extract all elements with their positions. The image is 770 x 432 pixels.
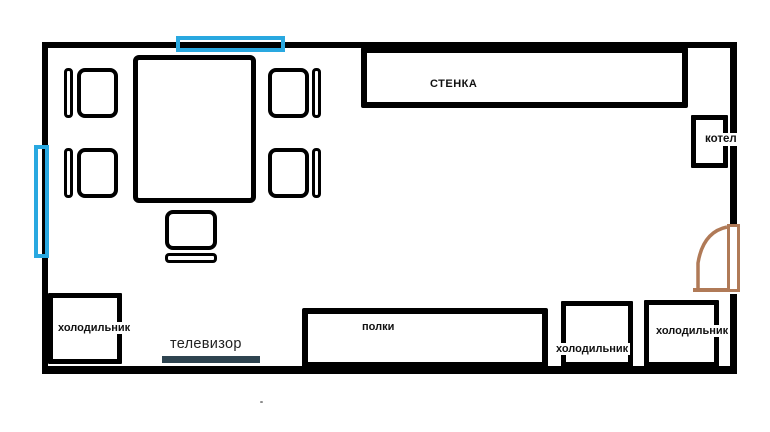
wall-unit-label: СТЕНКА: [428, 78, 479, 90]
chair-seat: [268, 148, 309, 198]
chair-back: [165, 253, 217, 263]
shelves-label: полки: [360, 321, 396, 333]
chair-back: [64, 148, 73, 198]
floor-plan: СТЕНКА котел холодильник телевизор полки…: [0, 0, 770, 432]
wall-unit-box: [361, 47, 688, 108]
fridge-left-label: холодильник: [56, 322, 132, 334]
chair-seat: [77, 148, 118, 198]
wall-right-lower: [730, 294, 737, 374]
tv-bar: [162, 356, 260, 363]
chair-seat: [165, 210, 217, 250]
chair-back: [312, 148, 321, 198]
boiler-label: котел: [703, 133, 739, 146]
fridge-middle-box: [561, 301, 633, 367]
window-top-icon: [176, 36, 285, 52]
stray-dot: [260, 401, 263, 403]
fridge-right-label: холодильник: [654, 325, 730, 337]
dining-table: [133, 55, 256, 203]
chair-seat: [268, 68, 309, 118]
window-left-icon: [34, 145, 49, 258]
chair-back: [312, 68, 321, 118]
door-icon: [688, 218, 746, 300]
tv-label: телевизор: [168, 337, 244, 353]
chair-back: [64, 68, 73, 118]
chair-seat: [77, 68, 118, 118]
fridge-middle-label: холодильник: [554, 343, 630, 355]
shelves-box: [302, 308, 548, 368]
